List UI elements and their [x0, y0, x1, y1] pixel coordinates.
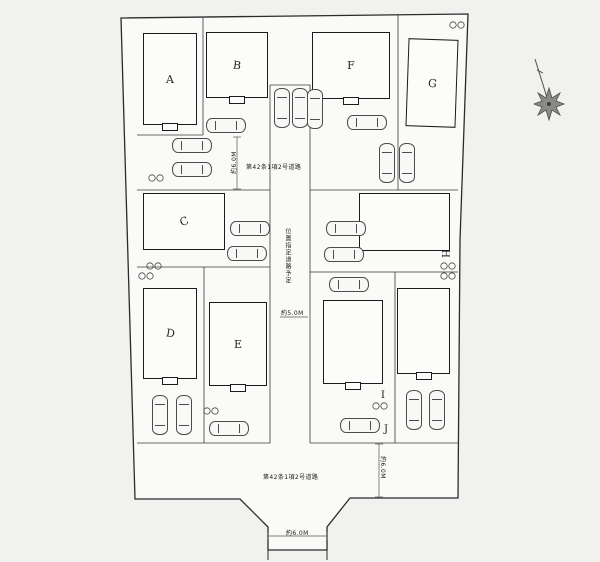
parked-car-icon [172, 162, 212, 177]
building-label: D [165, 326, 176, 340]
parked-car-icon [230, 221, 270, 236]
porch [162, 123, 178, 131]
building-label: A [166, 73, 174, 86]
building-E: E [209, 302, 267, 386]
dim-right-vertical: 約6.0M [379, 456, 388, 479]
parked-car-icon [227, 246, 267, 261]
parked-car-icon [209, 421, 249, 436]
parked-car-icon [347, 115, 387, 130]
parked-car-icon [399, 143, 415, 183]
porch [230, 384, 246, 392]
building-H [359, 193, 450, 251]
site-plan-drawing: A B F G C D E H I J [0, 0, 600, 562]
porch [345, 382, 361, 390]
building-label-I: I [381, 390, 385, 401]
parked-car-icon [340, 418, 380, 433]
porch [416, 372, 432, 380]
parked-car-icon [176, 395, 192, 435]
building-I [323, 300, 383, 384]
parked-car-icon [429, 390, 445, 430]
parked-car-icon [326, 221, 366, 236]
building-F: F [312, 32, 390, 99]
parked-car-icon [406, 390, 422, 430]
top-road-label: 第42条1項2号道路 [246, 162, 301, 171]
parked-car-icon [206, 118, 246, 133]
building-label: C [177, 214, 190, 229]
bottom-road-label: 第42条1項2号道路 [263, 472, 318, 481]
dim-bottom-road: 約6.0M [286, 528, 309, 537]
parked-car-icon [152, 395, 168, 435]
building-label-H: H [439, 249, 450, 258]
parked-car-icon [292, 88, 308, 128]
compass-rose-icon [534, 59, 564, 120]
parked-car-icon [329, 277, 369, 292]
parked-car-icon [379, 143, 395, 183]
center-road-label: 位置指定道路予定 [283, 228, 292, 302]
building-J [397, 288, 450, 374]
building-label: G [427, 76, 437, 90]
building-C: C [143, 193, 225, 250]
porch [229, 96, 245, 104]
parked-car-icon [307, 89, 323, 129]
porch [343, 97, 359, 105]
parked-car-icon [324, 247, 364, 262]
dim-center-road: 約5.0M [281, 308, 304, 317]
dim-left-vertical: 約6.0M [229, 151, 238, 174]
building-G: G [405, 38, 458, 128]
parked-car-icon [172, 138, 212, 153]
porch [162, 377, 178, 385]
building-label: F [347, 59, 355, 72]
building-D: D [143, 288, 197, 379]
building-label: B [232, 58, 242, 72]
building-A: A [143, 33, 197, 125]
parked-car-icon [274, 88, 290, 128]
building-B: B [206, 32, 268, 98]
building-label-J: J [384, 424, 388, 435]
building-label: E [234, 338, 242, 351]
